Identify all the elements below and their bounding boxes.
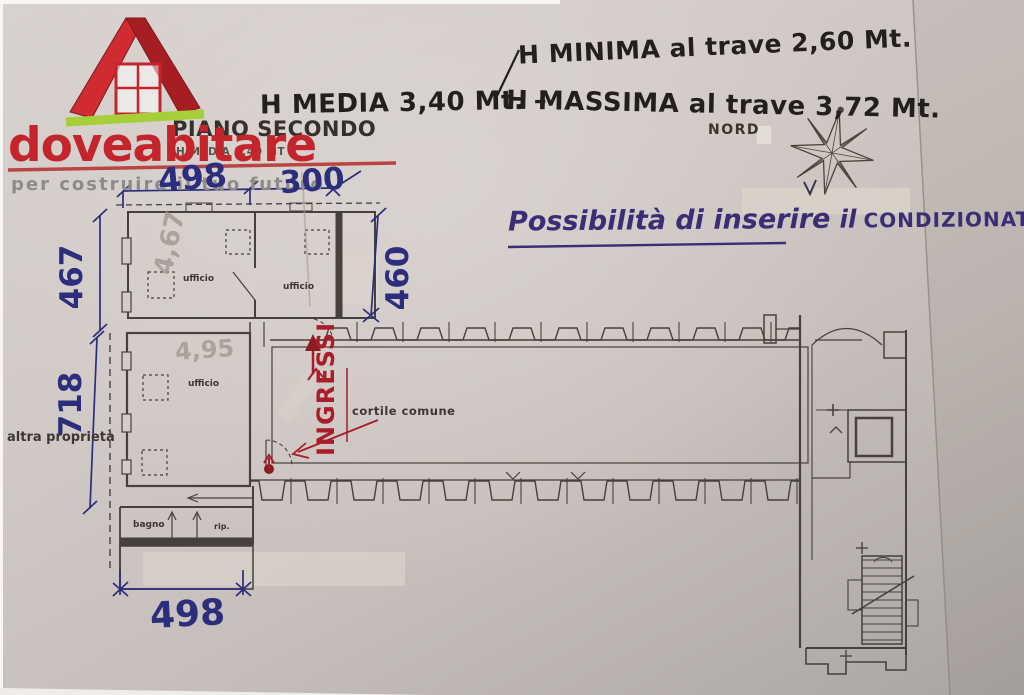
pencil-dim-lower: 4,95	[174, 334, 235, 366]
note-air-conditioner: Possibilità di inserire il CONDIZIONATOR…	[508, 201, 1024, 237]
note-air-part1: Possibilità di inserire	[508, 204, 831, 238]
room-office-mid: ufficio	[188, 379, 219, 389]
tape-patches	[143, 126, 910, 586]
note-h-media: H MEDIA 3,40 Mt. –	[260, 85, 548, 120]
room-storage: rip.	[214, 522, 229, 531]
room-office-top-left: ufficio	[183, 274, 214, 284]
dim-top-right: 300	[279, 161, 346, 201]
floor-plan-photo: doveabitare per costruire il tuo futuro …	[0, 0, 1024, 695]
dim-left-upper: 467	[54, 227, 90, 327]
north-label: NORD	[708, 122, 760, 138]
note-air-part2: il	[839, 204, 856, 233]
dim-bottom: 498	[149, 592, 226, 637]
entrances-label: INGRESSI	[308, 356, 344, 456]
plan-stairwell	[800, 315, 918, 674]
note-air-part3: CONDIZIONATORE.	[863, 206, 1024, 232]
dim-right-upper: 460	[380, 228, 416, 328]
room-courtyard: cortile comune	[352, 404, 455, 418]
purple-underline	[508, 243, 786, 247]
room-bathroom: bagno	[133, 520, 165, 530]
room-office-top-right: ufficio	[283, 282, 314, 292]
boundary-label: altra proprietà	[7, 430, 115, 445]
